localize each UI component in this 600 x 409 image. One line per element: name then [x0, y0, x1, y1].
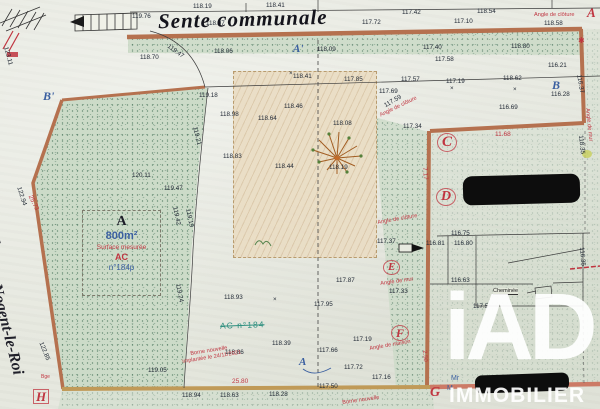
- boundary-south: [62, 387, 430, 389]
- red-edge-box: [7, 52, 18, 57]
- section-a-arrow: [303, 368, 331, 373]
- fence-northeast: [581, 29, 584, 123]
- parcel-letter: A: [83, 214, 160, 230]
- struck-cadastral-ref: AC n°184: [220, 319, 265, 331]
- fence-street-west: [33, 100, 63, 389]
- fence-east: [427, 131, 429, 389]
- parcel-number: n°184p: [83, 263, 160, 273]
- steps-hatch: [0, 7, 137, 31]
- benchmark-symbol: [399, 244, 424, 252]
- iad-logo-subtitle: IMMOBILIER: [449, 384, 585, 408]
- parcel-surface-label: Surface mesurée: [83, 244, 160, 252]
- iad-logo: iAD: [444, 282, 593, 372]
- parcel-area: 800m²: [83, 230, 160, 244]
- survey-plan: 119.76118.19118.41118.07117.42118.54117.…: [0, 0, 600, 409]
- tree-icon: [311, 132, 362, 174]
- redaction-bar: [463, 173, 581, 205]
- parcel-info-box: A 800m² Surface mesurée AC n°184p: [82, 210, 161, 296]
- street-name-sente-communale: Sente communale: [158, 5, 328, 34]
- yellow-marker: [582, 150, 592, 158]
- bush-scribble: [255, 241, 271, 246]
- fence-neighbor-north: [430, 123, 584, 131]
- fence-northwest: [62, 87, 205, 100]
- parcel-section: AC: [83, 252, 160, 263]
